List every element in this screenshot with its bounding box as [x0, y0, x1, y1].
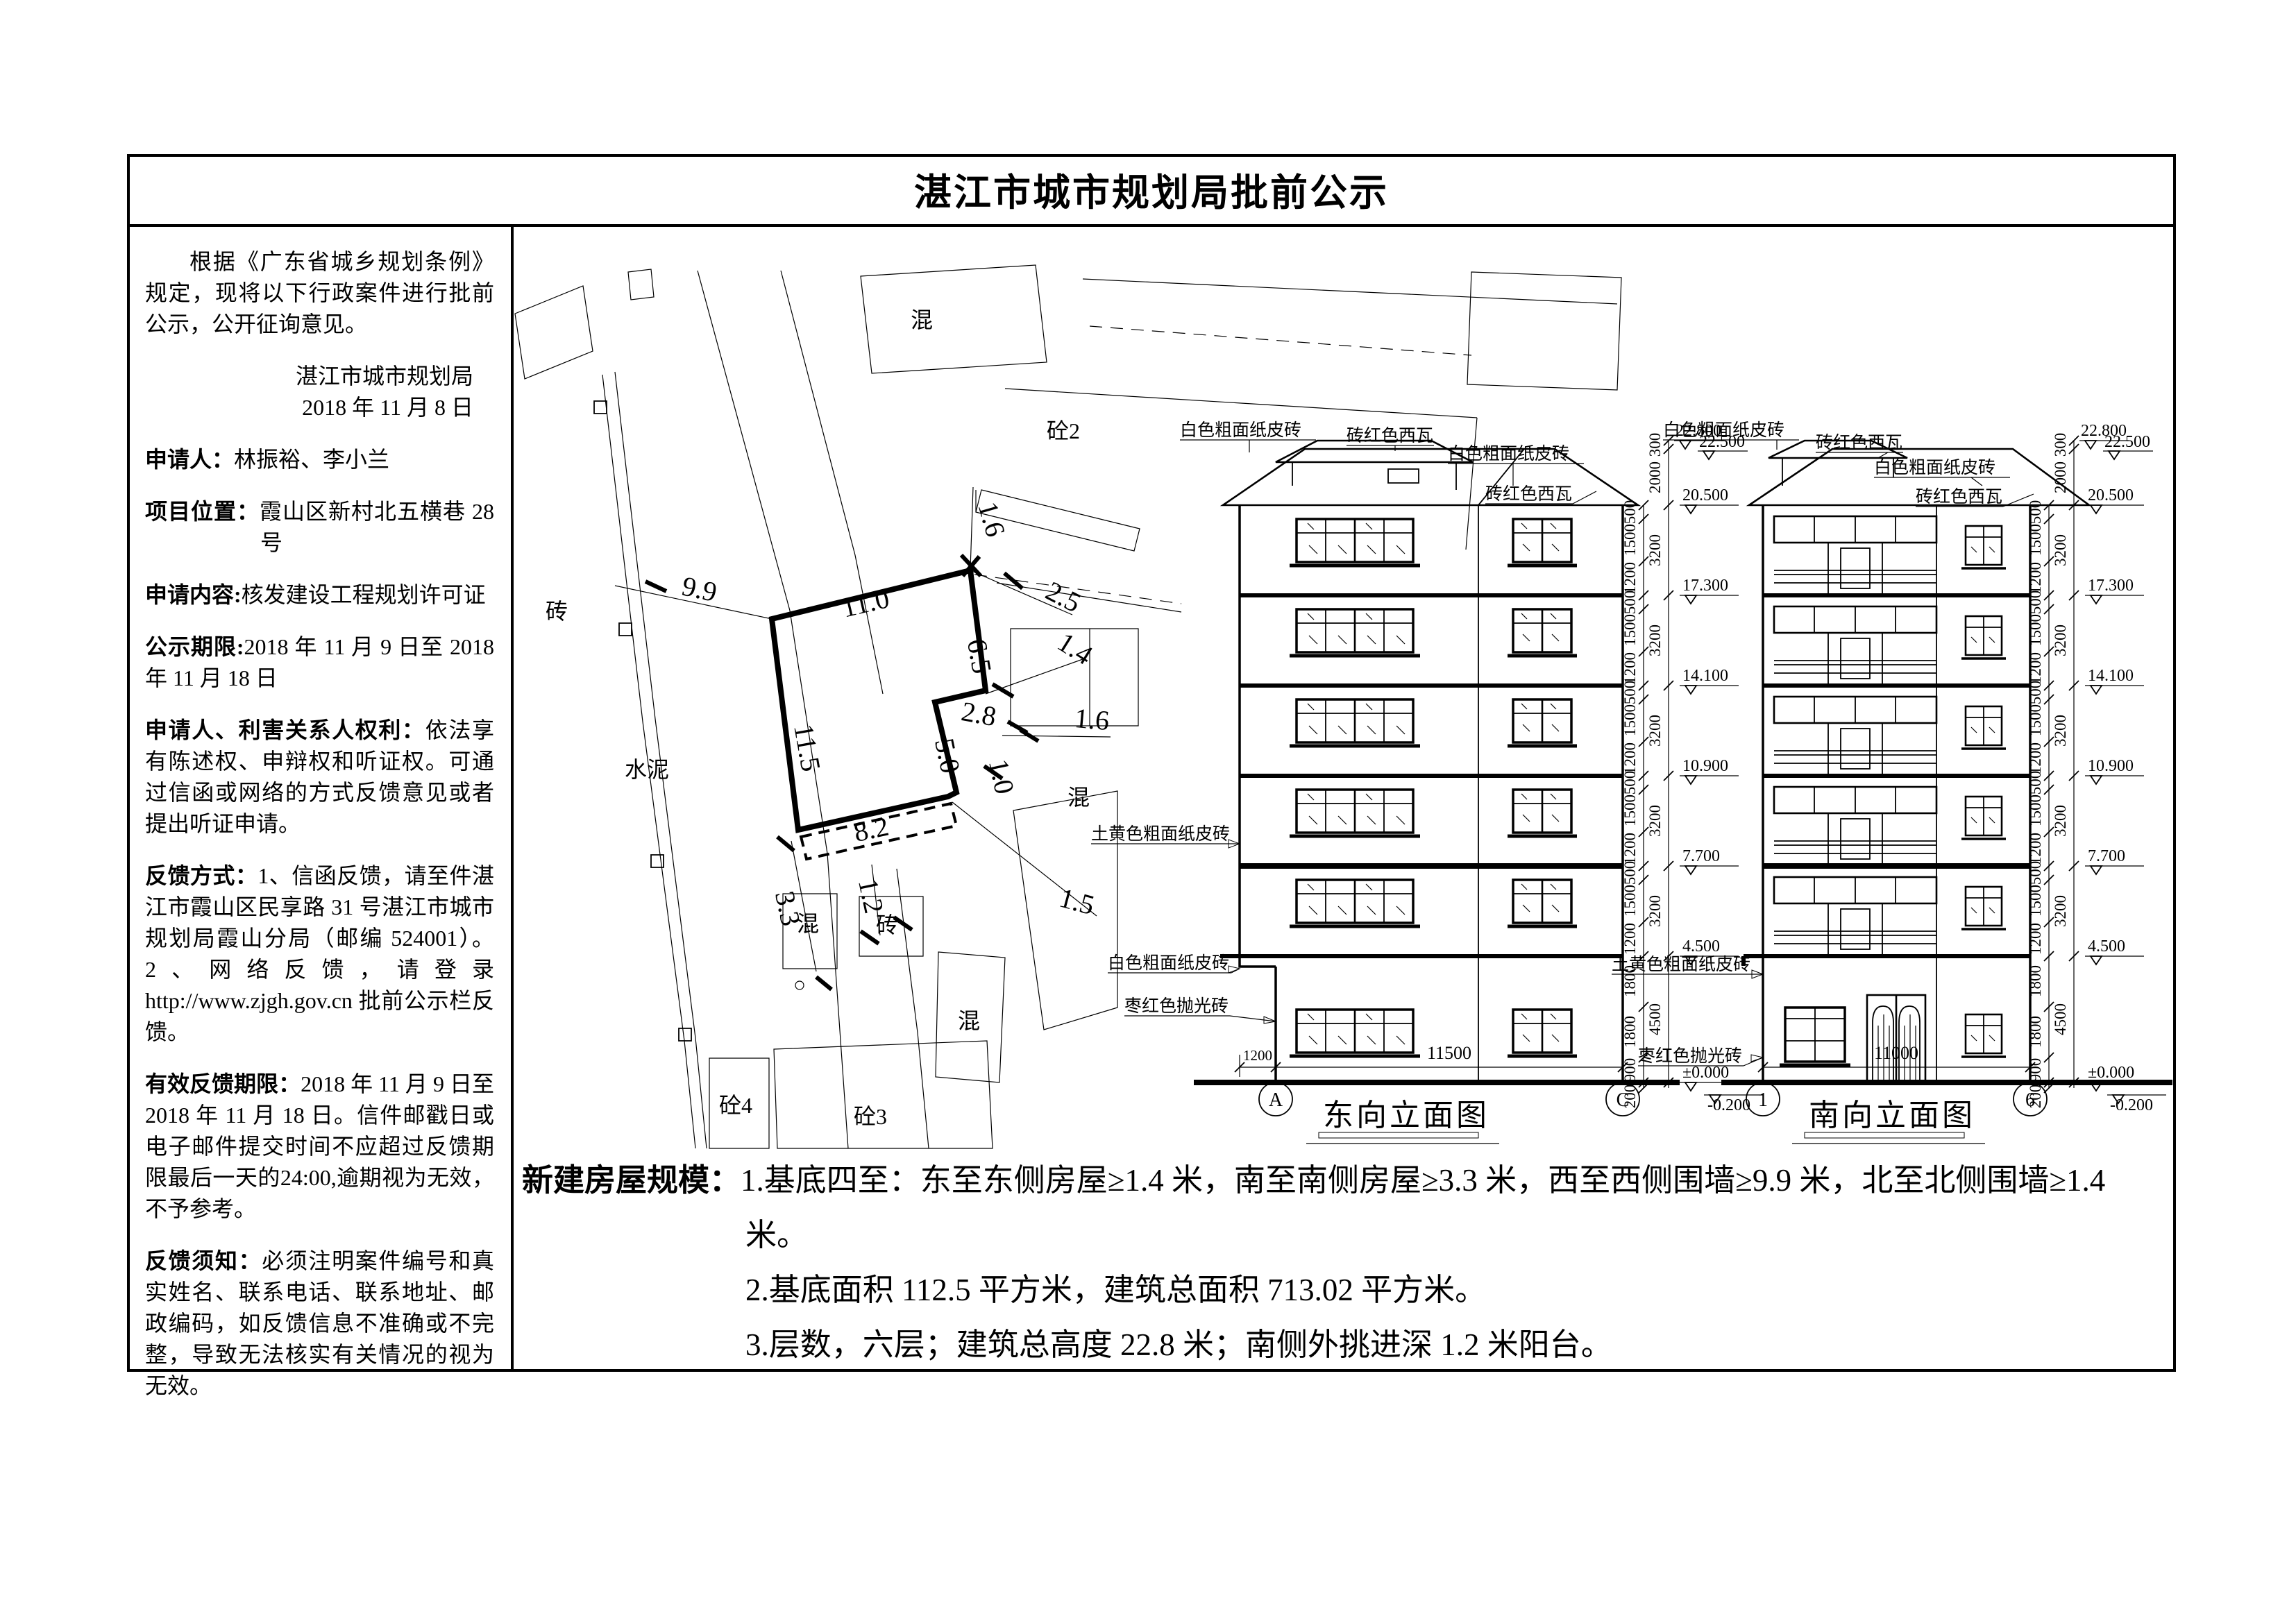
- material-label: 砖红色西瓦: [1485, 484, 1572, 504]
- rights-label: 申请人、利害关系人权利：: [145, 717, 425, 742]
- period-label: 公示期限:: [145, 634, 244, 659]
- chain-dim: 3200: [2052, 895, 2069, 927]
- info-panel: 根据《广东省城乡规划条例》规定，现将以下行政案件进行批前公示，公开征询意见。 湛…: [127, 227, 514, 1372]
- building-label-cement: 水泥: [625, 757, 669, 782]
- applicant-label: 申请人：: [145, 447, 234, 472]
- width-dim: 11500: [1427, 1043, 1471, 1063]
- level-text: 17.300: [1682, 577, 1728, 595]
- south-elevation-title: 南向立面图: [1809, 1098, 1975, 1132]
- chain-dim: 1200: [1621, 833, 1639, 865]
- building-label-conc4: 砼4: [719, 1093, 752, 1118]
- material-label: 白色粗面纸皮砖: [1874, 458, 1995, 477]
- dim-label-left: 11.5: [788, 722, 827, 774]
- feedback-paragraph: 反馈方式：1、信函反馈，请至件湛江市霞山区民享路 31 号湛江市城市规划局霞山分…: [145, 860, 494, 1048]
- building-label-conc-east: 混: [1067, 785, 1090, 810]
- location-value: 霞山区新村北五横巷 28号: [260, 499, 494, 555]
- east-level-markers: 22.800 22.500 20.500 17.300 14.100 10.90…: [1674, 422, 1763, 1114]
- east-dimension-chains: 500 1500 1200 500 1500 1200 500 1500 120…: [1621, 433, 1673, 1109]
- building-label-conc3: 砼3: [854, 1104, 887, 1129]
- chain-dim: 3200: [1646, 715, 1664, 747]
- material-label: 白色粗面纸皮砖: [1663, 420, 1784, 440]
- site-plan-roads: [698, 271, 929, 1148]
- width-dim: 1200: [1243, 1047, 1272, 1064]
- chain-dim: 300: [1646, 433, 1664, 457]
- feedback-value: 1、信函反馈，请至件湛江市霞山区民享路 31 号湛江市城市规划局霞山分局（邮编 …: [145, 863, 494, 1044]
- chain-dim: 1500: [2027, 614, 2044, 646]
- level-text: 10.900: [1682, 757, 1728, 775]
- building-label-conc-se: 混: [958, 1008, 980, 1033]
- material-label: 白色粗面纸皮砖: [1180, 420, 1301, 440]
- level-text: 7.700: [2088, 847, 2125, 865]
- south-ground-window: [1780, 1008, 1850, 1065]
- east-title-underline: [1319, 1132, 1478, 1138]
- building-label-conc2: 砼2: [1047, 418, 1080, 443]
- chain-dim: 4500: [2052, 1003, 2069, 1035]
- material-label: 白色粗面纸皮砖: [1448, 444, 1569, 464]
- level-text: 7.700: [1682, 847, 1720, 865]
- level-text: 20.500: [1682, 486, 1728, 504]
- chain-dim: 3200: [2052, 624, 2069, 656]
- chain-dim: 1800: [2027, 965, 2044, 997]
- chain-dim: 1500: [1621, 704, 1639, 736]
- level-text: 17.300: [2088, 577, 2134, 595]
- chain-dim: 500: [1621, 500, 1639, 525]
- chain-dim: 500: [2027, 590, 2044, 615]
- dim-label-e1: 2.5: [1041, 575, 1086, 619]
- authority-line: 湛江市城市规划局: [145, 361, 494, 392]
- site-plan: 9.9 11.0 1.6 2.5 6.5 1.4 2.8 1.6 11.5 5.…: [515, 265, 1621, 1148]
- content-paragraph: 申请内容:核发建设工程规划许可证: [145, 579, 494, 611]
- dim-label-north: 11.0: [839, 582, 893, 623]
- chain-dim: 900: [2027, 1058, 2044, 1082]
- chain-dim: 1200: [2027, 562, 2044, 594]
- building-scale-notes: 新建房屋规模：1.基底四至：东至东侧房屋≥1.4 米，南至南侧房屋≥3.3 米，…: [522, 1153, 2168, 1373]
- dim-label-e3: 1.6: [1073, 702, 1111, 736]
- chain-dim: 500: [2027, 681, 2044, 705]
- dim-label-step: 2.8: [959, 695, 999, 732]
- notes-lead: 新建房屋规模：: [522, 1163, 741, 1198]
- chain-dim: 500: [1621, 590, 1639, 615]
- width-dim: 11000: [1874, 1043, 1918, 1063]
- material-label: 砖红色西瓦: [1816, 433, 1902, 452]
- east-elevation-title: 东向立面图: [1323, 1098, 1489, 1132]
- building-label-brick-west: 砖: [546, 599, 568, 624]
- chain-dim: 3200: [1646, 805, 1664, 837]
- building-label-brick-south: 砖: [876, 912, 898, 937]
- chain-dim: 500: [1621, 771, 1639, 795]
- chain-dim: 300: [2052, 433, 2069, 457]
- chain-dim: 1800: [1621, 1016, 1639, 1048]
- level-text: 14.100: [2088, 667, 2134, 685]
- dim-label-s2: 1.0: [983, 756, 1020, 797]
- period-paragraph: 公示期限:2018 年 11 月 9 日至 2018 年 11 月 18 日: [145, 631, 494, 694]
- chain-dim: 4500: [1646, 1003, 1664, 1035]
- location-paragraph: 项目位置：霞山区新村北五横巷 28号: [145, 496, 494, 559]
- south-level-markers: 22.800 22.500 20.500 17.300 14.100 10.90…: [2079, 422, 2166, 1114]
- dim-label-west: 9.9: [679, 570, 720, 608]
- south-elevation: 白色粗面纸皮砖 砖红色西瓦 白色粗面纸皮砖 砖红色西瓦 土黄色粗面纸皮砖 枣红色…: [1612, 420, 2172, 1144]
- level-text: -0.200: [2110, 1096, 2153, 1114]
- dim-label-east: 6.5: [961, 636, 998, 676]
- level-text: 14.100: [1682, 667, 1728, 685]
- chain-dim: 1500: [1621, 524, 1639, 556]
- chain-dim: 1200: [2027, 742, 2044, 774]
- east-material-labels: 白色粗面纸皮砖 砖红色西瓦 白色粗面纸皮砖 砖红色西瓦 土黄色粗面纸皮砖 白色粗…: [1091, 420, 1596, 1023]
- notice-page: 湛江市城市规划局批前公示 根据《广东省城乡规划条例》规定，现将以下行政案件进行批…: [0, 0, 2296, 1623]
- grid-bubble-text: C: [1617, 1089, 1630, 1111]
- dim-label-ne: 1.6: [972, 498, 1011, 540]
- south-dimension-chains: 500 1500 1200 500 1500 1200 500 1500 120…: [2027, 433, 2079, 1109]
- location-label: 项目位置：: [145, 499, 260, 524]
- building-label-conc-top: 混: [911, 307, 933, 332]
- rights-paragraph: 申请人、利害关系人权利：依法享有陈述权、申辩权和听证权。可通过信函或网络的方式反…: [145, 715, 494, 840]
- chain-dim: 1200: [2027, 923, 2044, 955]
- content-value: 核发建设工程规划许可证: [242, 582, 486, 607]
- chain-dim: 3200: [2052, 805, 2069, 837]
- dim-label-s1: 5.0: [929, 736, 966, 776]
- chain-dim: 1500: [2027, 524, 2044, 556]
- material-label: 枣红色抛光砖: [1638, 1046, 1742, 1066]
- chain-dim: 500: [2027, 500, 2044, 525]
- chain-dim: 1200: [1621, 562, 1639, 594]
- grid-bubble-text: 6: [2025, 1089, 2035, 1111]
- level-text: 4.500: [2088, 937, 2125, 955]
- grid-bubble-text: 1: [1758, 1089, 1768, 1111]
- drawings-svg: 9.9 11.0 1.6 2.5 6.5 1.4 2.8 1.6 11.5 5.…: [514, 227, 2174, 1152]
- valid-label: 有效反馈期限：: [145, 1071, 301, 1096]
- chain-dim: 500: [2027, 861, 2044, 885]
- chain-dim: 500: [2027, 771, 2044, 795]
- chain-dim: 1500: [1621, 614, 1639, 646]
- notes-item-1: 新建房屋规模：1.基底四至：东至东侧房屋≥1.4 米，南至南侧房屋≥3.3 米，…: [522, 1153, 2168, 1263]
- valid-paragraph: 有效反馈期限：2018 年 11 月 9 日至 2018 年 11 月 18 日…: [145, 1069, 494, 1225]
- chain-dim: 1800: [2027, 1016, 2044, 1048]
- applicant-paragraph: 申请人：林振裕、李小兰: [145, 444, 494, 475]
- chain-dim: 3200: [2052, 534, 2069, 566]
- notice-paragraph: 反馈须知：必须注明案件编号和真实姓名、联系电话、联系地址、邮政编码，如反馈信息不…: [145, 1246, 494, 1402]
- south-entrance-door: [1867, 995, 1925, 1082]
- chain-dim: 3200: [1646, 534, 1664, 566]
- chain-dim: 1200: [1621, 742, 1639, 774]
- chain-dim: 1500: [2027, 794, 2044, 826]
- material-label: 砖红色西瓦: [1916, 487, 2002, 507]
- chain-dim: 2000: [1646, 461, 1664, 493]
- chain-dim: 1200: [1621, 652, 1639, 684]
- building-label-conc-mid: 混: [797, 911, 819, 936]
- chain-dim: 1500: [2027, 885, 2044, 917]
- material-label: 土黄色粗面纸皮砖: [1091, 824, 1230, 844]
- east-elevation: 白色粗面纸皮砖 砖红色西瓦 白色粗面纸皮砖 砖红色西瓦 土黄色粗面纸皮砖 白色粗…: [1091, 420, 1763, 1144]
- intro-paragraph: 根据《广东省城乡规划条例》规定，现将以下行政案件进行批前公示，公开征询意见。: [145, 246, 494, 340]
- dim-label-south: 8.2: [851, 810, 891, 848]
- level-text: 20.500: [2088, 486, 2134, 504]
- chain-dim: 1200: [2027, 833, 2044, 865]
- material-label: 砖红色西瓦: [1347, 426, 1433, 445]
- applicant-value: 林振裕、李小兰: [234, 447, 389, 472]
- level-text: ±0.000: [2088, 1064, 2134, 1082]
- material-label: 土黄色粗面纸皮砖: [1612, 955, 1750, 974]
- level-text: 10.900: [2088, 757, 2134, 775]
- notes-item-2: 2.基底面积 112.5 平方米，建筑总面积 713.02 平方米。: [522, 1263, 2168, 1318]
- chain-dim: 3200: [1646, 624, 1664, 656]
- south-title-underline: [1805, 1132, 1964, 1138]
- notice-label: 反馈须知：: [145, 1248, 262, 1273]
- chain-dim: 900: [1621, 1058, 1639, 1082]
- chain-dim: 3200: [1646, 895, 1664, 927]
- date-line: 2018 年 11 月 8 日: [145, 392, 494, 423]
- dim-label-balcony: 1.2: [852, 876, 890, 916]
- east-building: [1194, 441, 1680, 1082]
- level-text: -0.200: [1707, 1096, 1750, 1114]
- chain-dim: 1200: [2027, 652, 2044, 684]
- chain-dim: 2000: [2052, 461, 2069, 493]
- level-text: ±0.000: [1682, 1064, 1729, 1082]
- chain-dim: 1500: [2027, 704, 2044, 736]
- notes-item-3: 3.层数，六层；建筑总高度 22.8 米；南侧外挑进深 1.2 米阳台。: [522, 1318, 2168, 1373]
- chain-dim: 1500: [1621, 794, 1639, 826]
- grid-bubble-text: A: [1269, 1089, 1283, 1111]
- chain-dim: 3200: [2052, 715, 2069, 747]
- south-material-labels: 白色粗面纸皮砖 砖红色西瓦 白色粗面纸皮砖 砖红色西瓦 土黄色粗面纸皮砖 枣红色…: [1612, 420, 2034, 1066]
- content-label: 申请内容:: [145, 582, 242, 607]
- notes-item-1-text: 1.基底四至：东至东侧房屋≥1.4 米，南至南侧房屋≥3.3 米，西至西侧围墙≥…: [741, 1163, 2105, 1252]
- material-label: 枣红色抛光砖: [1124, 996, 1229, 1016]
- dim-label-se: 1.5: [1056, 882, 1098, 921]
- dim-label-e2: 1.4: [1052, 626, 1098, 671]
- feedback-label: 反馈方式：: [145, 863, 258, 888]
- material-label: 白色粗面纸皮砖: [1108, 953, 1229, 973]
- level-text: 4.500: [1682, 937, 1720, 955]
- site-plan-parcels: [515, 265, 1621, 1148]
- chain-dim: 500: [1621, 681, 1639, 705]
- chain-dim: 1500: [1621, 885, 1639, 917]
- chain-dim: 500: [1621, 861, 1639, 885]
- chain-dim: 1200: [1621, 923, 1639, 955]
- level-text: 22.500: [2104, 433, 2150, 451]
